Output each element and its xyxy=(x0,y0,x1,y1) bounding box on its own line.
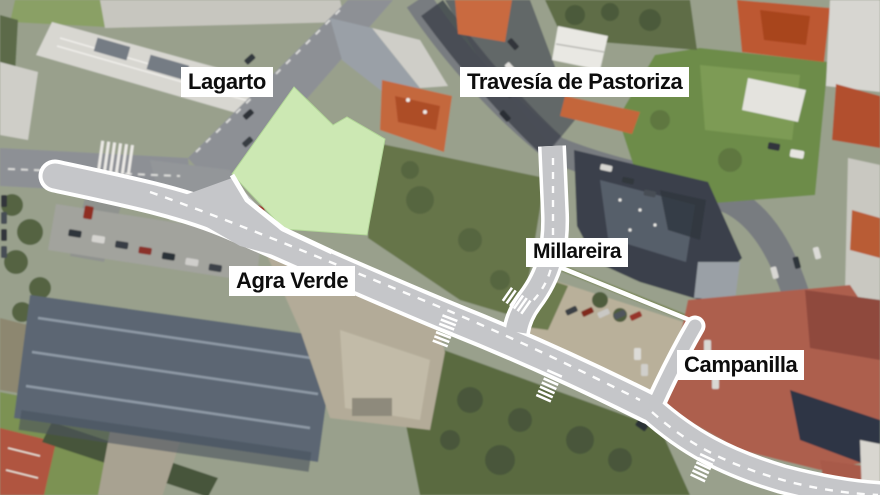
satellite-photo-layer xyxy=(0,0,880,495)
street-label-lagarto: Lagarto xyxy=(181,67,273,97)
map-image xyxy=(0,0,880,495)
street-label-travesia-de-pastoriza: Travesía de Pastoriza xyxy=(460,67,689,97)
street-label-millareira: Millareira xyxy=(526,238,628,267)
street-label-campanilla: Campanilla xyxy=(677,350,804,380)
satellite-map: Lagarto Travesía de Pastoriza Agra Verde… xyxy=(0,0,880,495)
street-label-agra-verde: Agra Verde xyxy=(229,266,355,296)
